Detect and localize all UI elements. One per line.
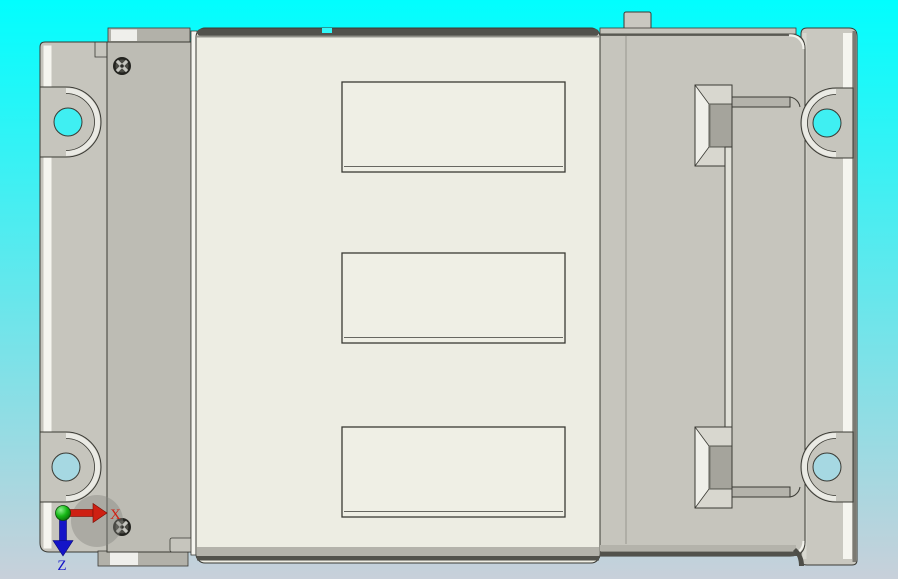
foot-bottom-highlight — [110, 553, 138, 566]
panel-recess-3[interactable] — [342, 427, 565, 517]
pocket-inner-face[interactable] — [709, 446, 732, 489]
right-section[interactable] — [600, 12, 805, 566]
recess-outline[interactable] — [342, 427, 565, 517]
z-axis-label: Z — [57, 558, 66, 574]
handle-pocket-bottom[interactable] — [695, 427, 732, 508]
handle-groove-top[interactable] — [732, 97, 790, 107]
panel-top-bevel — [197, 29, 599, 37]
bottom-small-tab[interactable] — [170, 538, 193, 552]
pocket-inner-face[interactable] — [709, 104, 732, 147]
model-scene[interactable]: X Z — [0, 0, 898, 579]
handle-groove-bottom[interactable] — [732, 487, 790, 497]
right-section-top-bevel — [600, 34, 796, 37]
foot-top-highlight — [111, 30, 137, 42]
x-axis-shaft — [68, 510, 93, 517]
panel-recess-1[interactable] — [342, 82, 565, 172]
left-plate[interactable] — [40, 42, 107, 552]
mounting-hole-top-right[interactable] — [813, 109, 841, 137]
mounting-hole-top-left[interactable] — [54, 108, 82, 136]
recess-outline[interactable] — [342, 82, 565, 172]
right-section-bottom-bevel — [600, 545, 796, 551]
panel-recess-2[interactable] — [342, 253, 565, 343]
front-panel[interactable] — [191, 28, 600, 563]
panel-bottom-edge — [197, 556, 599, 561]
inner-strip-face[interactable] — [107, 42, 191, 552]
mounting-hole-bottom-left[interactable] — [52, 453, 80, 481]
mounting-hole-bottom-right[interactable] — [813, 453, 841, 481]
inner-strip[interactable] — [98, 28, 193, 566]
panel-top-notch — [322, 28, 332, 33]
origin-ball — [56, 506, 71, 521]
panel-bottom-bevel — [197, 547, 599, 556]
recess-outline[interactable] — [342, 253, 565, 343]
cad-viewport[interactable]: X Z — [0, 0, 898, 579]
panel-top-bevel-light — [197, 36, 599, 38]
x-axis-label: X — [110, 507, 121, 523]
right-section-bottom-edge — [600, 552, 797, 557]
screw-center — [120, 64, 124, 68]
handle-groove-vertical[interactable] — [725, 147, 732, 447]
